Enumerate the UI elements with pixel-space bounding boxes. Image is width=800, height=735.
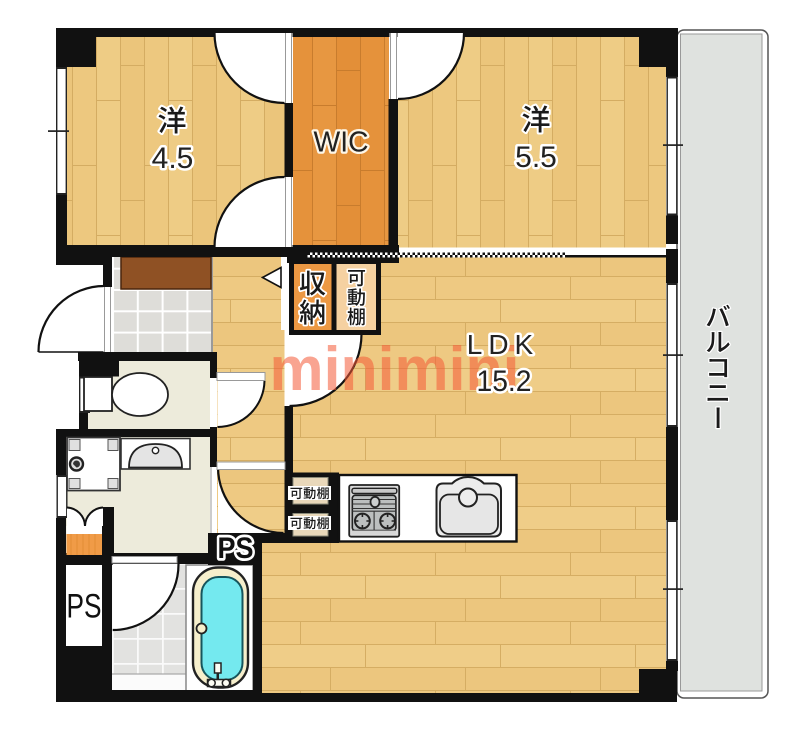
svg-text:4.5: 4.5 [152,142,194,175]
svg-text:5.5: 5.5 [515,141,557,174]
svg-text:WIC: WIC [314,127,369,159]
svg-text:PS: PS [67,588,102,626]
svg-text:15.2: 15.2 [477,365,532,398]
svg-text:PS: PS [218,532,254,565]
svg-text:LDK: LDK [467,329,539,360]
